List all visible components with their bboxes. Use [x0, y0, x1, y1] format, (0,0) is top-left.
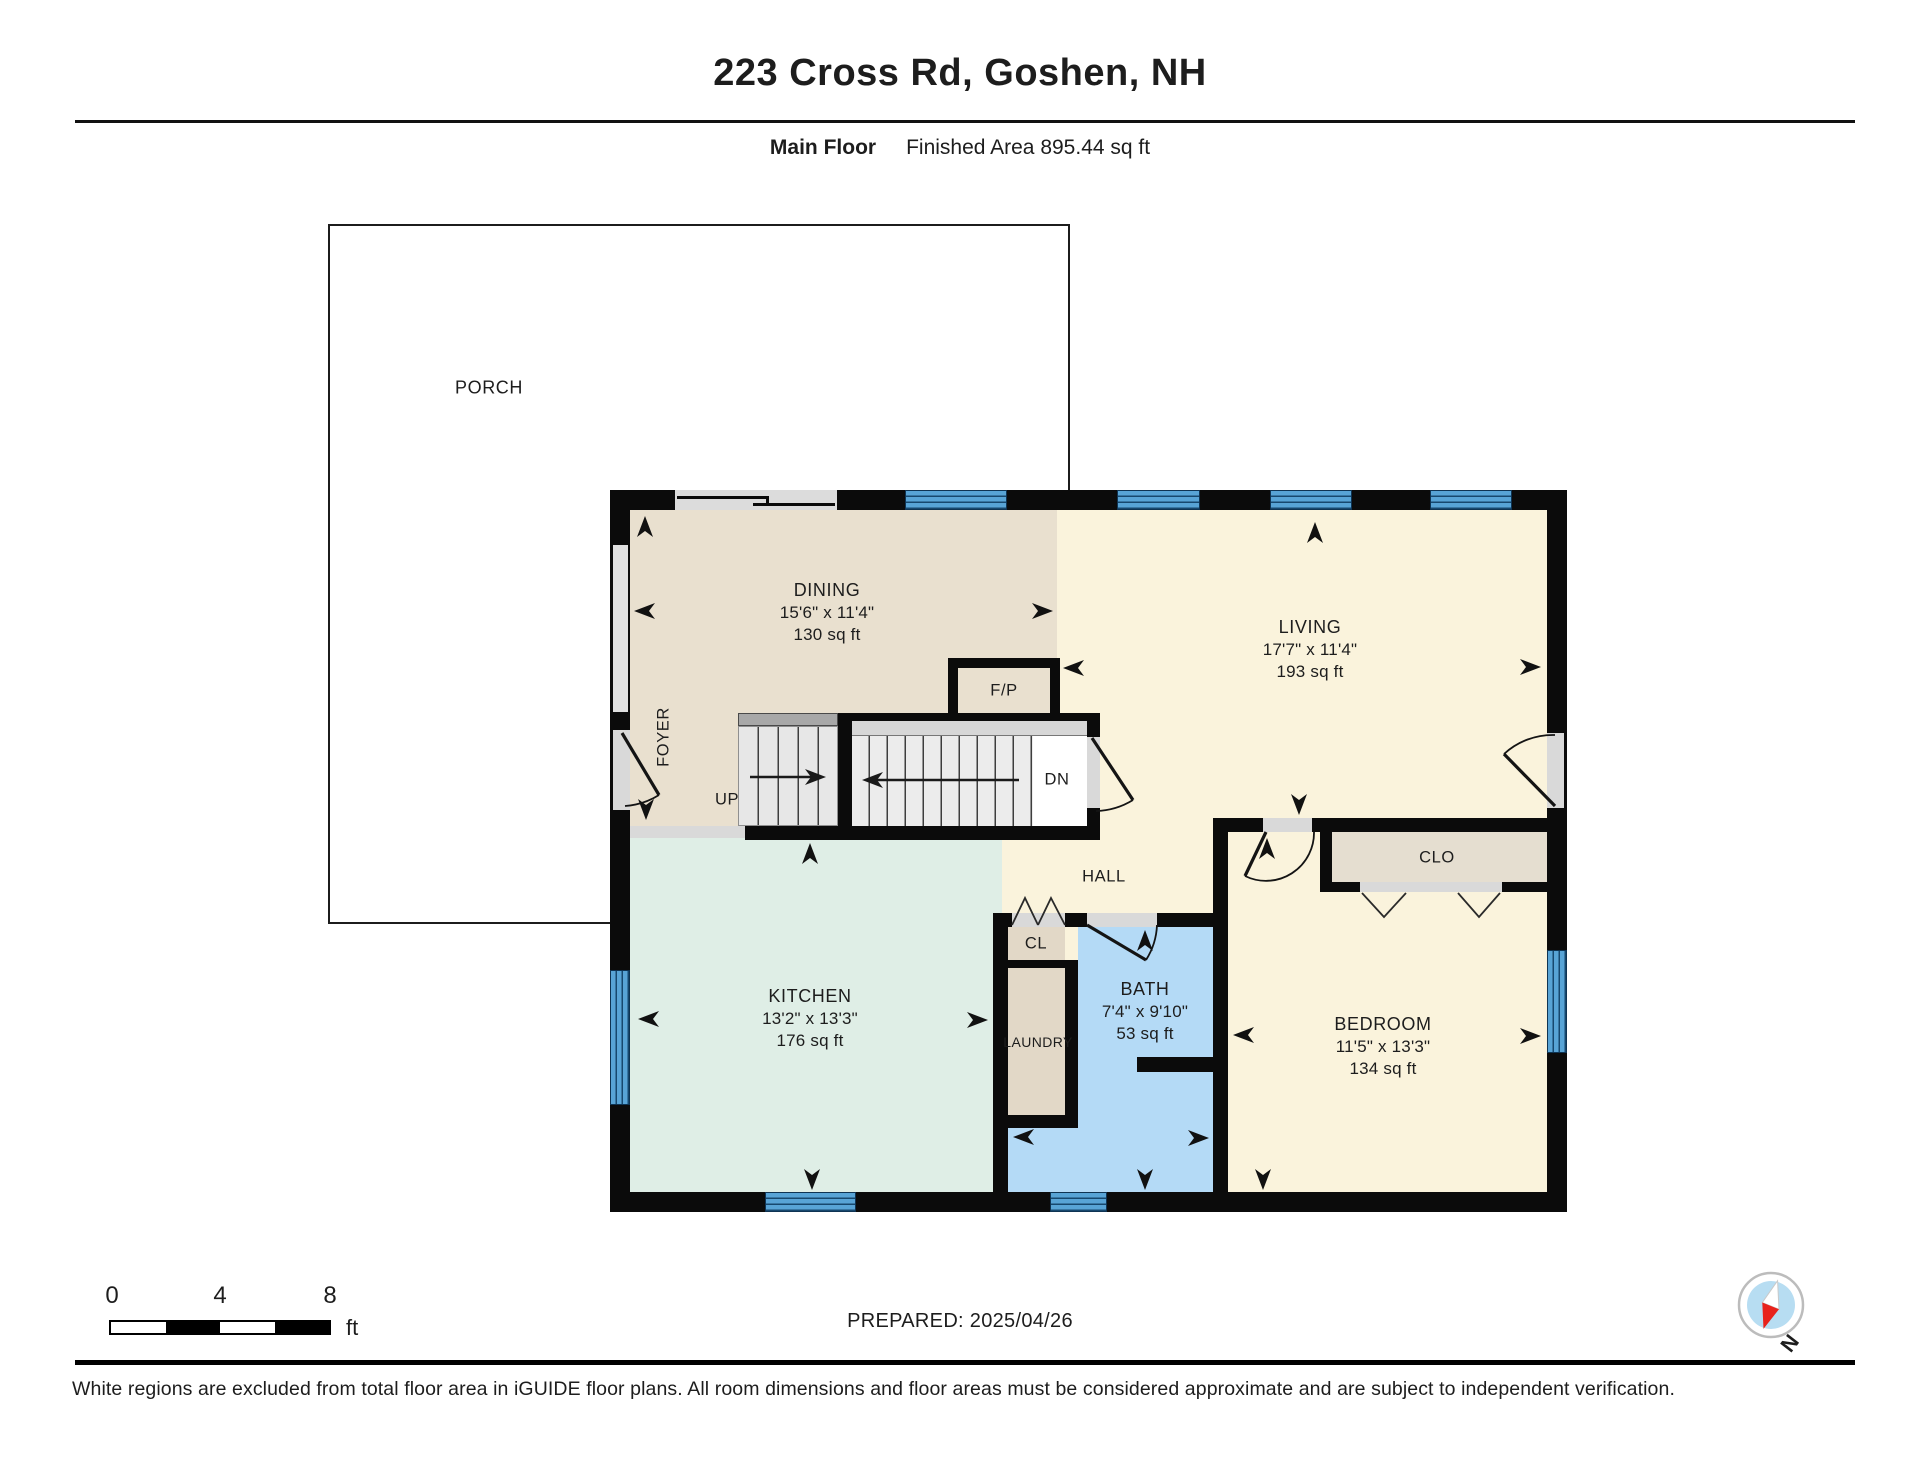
direction-arrow-icon: [802, 843, 818, 864]
basement-door-arc: [1096, 800, 1133, 811]
scale-unit: ft: [346, 1315, 358, 1341]
room-label-up: UP: [715, 789, 739, 810]
cl-bifold-right: [1038, 898, 1065, 925]
direction-arrow-icon: [637, 516, 653, 537]
direction-arrow-icon: [1520, 1028, 1541, 1044]
scale-seg-white: [111, 1322, 166, 1333]
room-label-dining: DINING 15'6" x 11'4" 130 sq ft: [780, 579, 875, 647]
direction-arrow-icon: [1291, 794, 1307, 815]
compass-north: N: [1783, 1332, 1798, 1356]
closet-chevrons: [1012, 893, 1500, 925]
room-label-fp: F/P: [990, 680, 1017, 701]
room-label-cl: CL: [1025, 933, 1047, 954]
bath-door-leaf: [1087, 925, 1146, 960]
direction-arrow-icon: [638, 1011, 659, 1027]
room-label-hall: HALL: [1082, 866, 1126, 887]
scale-tick-8: 8: [323, 1282, 336, 1310]
scale-bar: [109, 1320, 331, 1335]
stair-arrows: [750, 769, 1019, 788]
compass-icon: [1736, 1270, 1806, 1340]
scale-tick-4: 4: [213, 1282, 226, 1310]
door-swings: [622, 733, 1555, 960]
room-label-foyer: FOYER: [653, 707, 674, 767]
living-door-leaf: [1504, 754, 1555, 806]
direction-arrow-icon: [1137, 930, 1153, 951]
direction-arrow-icon: [1063, 660, 1084, 676]
scale-seg-white: [220, 1322, 275, 1333]
direction-arrow-icons: [634, 516, 1541, 1190]
basement-door-leaf: [1092, 738, 1133, 800]
clo-bifold-left: [1362, 893, 1406, 917]
room-label-bedroom: BEDROOM 11'5" x 13'3" 134 sq ft: [1334, 1013, 1431, 1081]
direction-arrow-icon: [804, 1169, 820, 1190]
scale-seg-black: [275, 1322, 330, 1333]
disclaimer-text: White regions are excluded from total fl…: [72, 1378, 1862, 1401]
room-label-living: LIVING 17'7" x 11'4" 193 sq ft: [1263, 616, 1358, 684]
clo-bifold-right: [1458, 893, 1500, 917]
cl-bifold-left: [1012, 898, 1038, 925]
direction-arrow-icon: [1137, 1169, 1153, 1190]
direction-arrow-icon: [967, 1012, 988, 1028]
direction-arrow-icon: [634, 603, 655, 619]
living-door-arc: [1504, 735, 1555, 754]
room-label-kitchen: KITCHEN 13'2" x 13'3" 176 sq ft: [762, 985, 858, 1053]
direction-arrow-icon: [1188, 1130, 1209, 1146]
direction-arrow-icon: [1307, 522, 1323, 543]
direction-arrow-icon: [1032, 603, 1053, 619]
direction-arrow-icon: [1013, 1129, 1034, 1145]
scale-tick-0: 0: [105, 1282, 118, 1310]
room-label-bath: BATH 7'4" x 9'10" 53 sq ft: [1102, 978, 1188, 1046]
direction-arrow-icon: [1255, 1169, 1271, 1190]
floorplan-page: 223 Cross Rd, Goshen, NH Main Floor Fini…: [0, 0, 1920, 1483]
room-label-clo: CLO: [1419, 847, 1455, 868]
room-label-laundry: LAUNDRY: [1003, 1033, 1072, 1051]
direction-arrow-icon: [1520, 659, 1541, 675]
prepared-date: PREPARED: 2025/04/26: [847, 1310, 1073, 1333]
plan-annotations: [0, 0, 1920, 1483]
room-label-dn: DN: [1044, 769, 1069, 790]
scale-seg-black: [166, 1322, 221, 1333]
footer-divider: [75, 1360, 1855, 1365]
direction-arrow-icon: [1233, 1027, 1254, 1043]
